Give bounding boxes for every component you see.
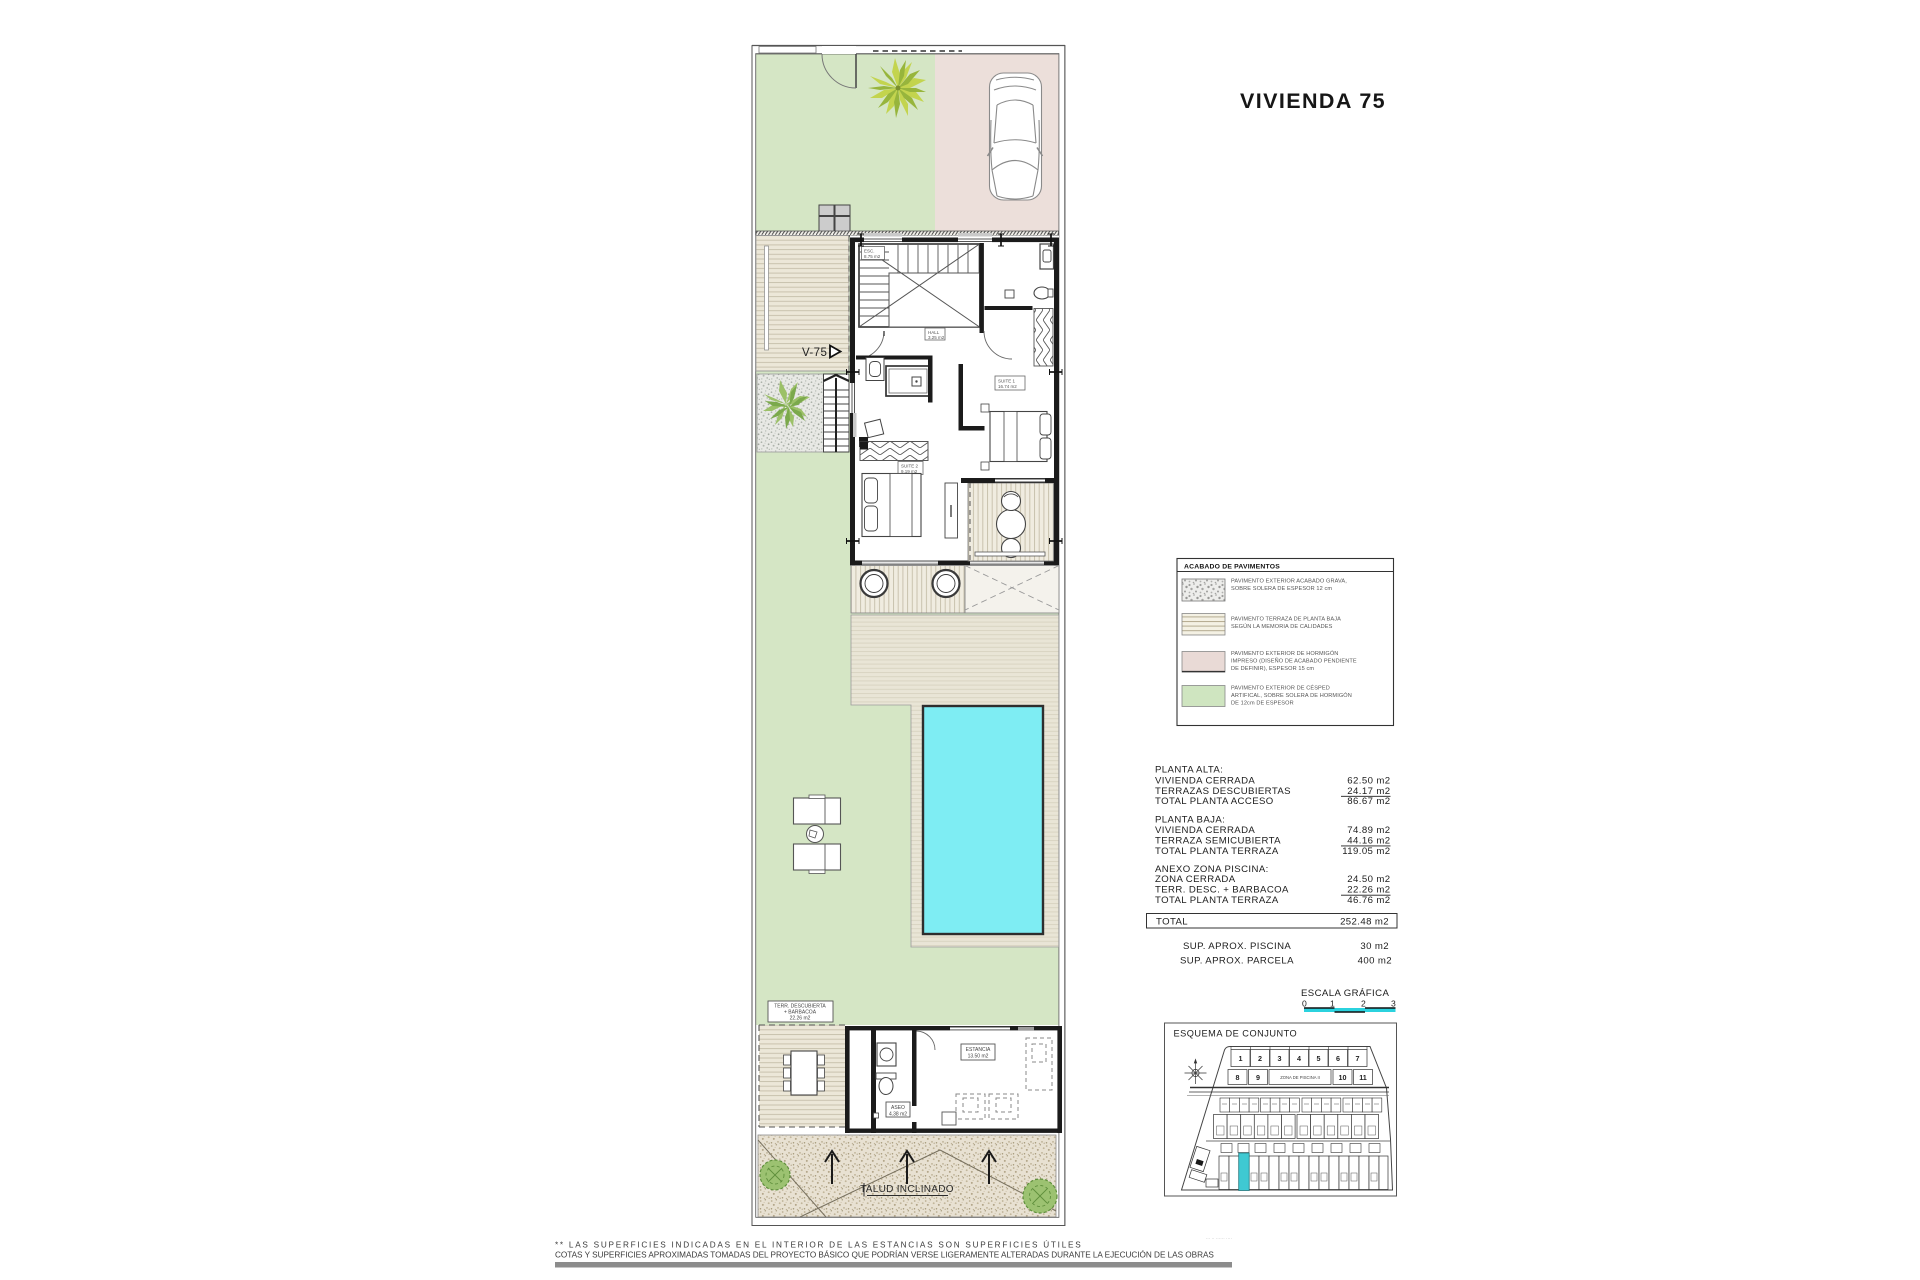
- svg-text:PLANTA ALTA:: PLANTA ALTA:: [1155, 765, 1223, 776]
- svg-text:ASEO: ASEO: [891, 1105, 905, 1111]
- svg-text:0: 0: [1302, 999, 1307, 1009]
- svg-text:COTAS Y SUPERFICIES APROXIMADA: COTAS Y SUPERFICIES APROXIMADAS TOMADAS …: [555, 1250, 1214, 1260]
- svg-text:TOTAL PLANTA TERRAZA: TOTAL PLANTA TERRAZA: [1155, 846, 1279, 857]
- svg-text:VIVIENDA CERRADA: VIVIENDA CERRADA: [1155, 825, 1255, 836]
- svg-text:SUP. APROX. PISCINA: SUP. APROX. PISCINA: [1183, 941, 1291, 952]
- svg-text:PAVIMENTO TERRAZA DE PLANTA BA: PAVIMENTO TERRAZA DE PLANTA BAJA: [1231, 617, 1341, 623]
- svg-text:11: 11: [1359, 1073, 1367, 1082]
- svg-text:SUP. APROX. PARCELA: SUP. APROX. PARCELA: [1180, 955, 1294, 966]
- svg-text:119.05 m2: 119.05 m2: [1342, 846, 1390, 857]
- svg-text:400 m2: 400 m2: [1358, 955, 1392, 966]
- svg-text:3: 3: [1391, 999, 1396, 1009]
- svg-text:44.16 m2: 44.16 m2: [1347, 835, 1390, 846]
- svg-text:ESCALA GRÁFICA: ESCALA GRÁFICA: [1301, 988, 1389, 999]
- svg-text:TERRAZA SEMICUBIERTA: TERRAZA SEMICUBIERTA: [1155, 835, 1281, 846]
- svg-text:2: 2: [1258, 1054, 1262, 1063]
- svg-text:16.74 m2: 16.74 m2: [998, 384, 1017, 389]
- svg-text:30 m2: 30 m2: [1360, 941, 1389, 952]
- svg-text:PAVIMENTO EXTERIOR DE HORMIGÓN: PAVIMENTO EXTERIOR DE HORMIGÓN: [1231, 650, 1338, 657]
- svg-text:TOTAL PLANTA ACCESO: TOTAL PLANTA ACCESO: [1155, 796, 1274, 807]
- svg-text:74.89 m2: 74.89 m2: [1347, 825, 1390, 836]
- svg-text:10: 10: [1339, 1073, 1347, 1082]
- svg-text:8.75 m2: 8.75 m2: [864, 254, 881, 259]
- svg-text:2: 2: [1361, 999, 1366, 1009]
- svg-text:ESC.: ESC.: [864, 249, 875, 254]
- svg-text:** LAS SUPERFICIES INDICADAS E: ** LAS SUPERFICIES INDICADAS EN EL INTER…: [555, 1240, 1082, 1250]
- svg-text:1: 1: [1330, 999, 1335, 1009]
- svg-text:46.76 m2: 46.76 m2: [1347, 895, 1390, 906]
- svg-text:DE 12cm DE ESPESOR: DE 12cm DE ESPESOR: [1231, 701, 1294, 707]
- svg-text:ZONA DE PISCINA II: ZONA DE PISCINA II: [1280, 1075, 1320, 1080]
- svg-text:SEGÚN LA MEMORIA DE CALIDADES: SEGÚN LA MEMORIA DE CALIDADES: [1231, 623, 1333, 630]
- svg-text:PAVIMENTO EXTERIOR ACABADO GRA: PAVIMENTO EXTERIOR ACABADO GRAVA,: [1231, 579, 1347, 585]
- svg-text:VIVIENDA CERRADA: VIVIENDA CERRADA: [1155, 775, 1255, 786]
- svg-text:SUITE 2: SUITE 2: [901, 464, 919, 469]
- svg-text:1: 1: [1239, 1054, 1243, 1063]
- svg-text:TOTAL PLANTA TERRAZA: TOTAL PLANTA TERRAZA: [1155, 895, 1279, 906]
- svg-text:6: 6: [1336, 1054, 1340, 1063]
- svg-text:V-75: V-75: [802, 347, 827, 359]
- svg-text:PAVIMENTO EXTERIOR DE CÉSPED: PAVIMENTO EXTERIOR DE CÉSPED: [1231, 685, 1330, 692]
- svg-text:TOTAL: TOTAL: [1156, 916, 1188, 927]
- svg-text:4: 4: [1297, 1054, 1301, 1063]
- svg-text:ACABADO DE PAVIMENTOS: ACABADO DE PAVIMENTOS: [1184, 564, 1280, 571]
- svg-text:ESTANCIA: ESTANCIA: [966, 1047, 991, 1053]
- svg-text:7: 7: [1356, 1054, 1360, 1063]
- svg-text:8: 8: [1236, 1073, 1240, 1082]
- svg-text:VIVIENDA 75: VIVIENDA 75: [1240, 89, 1386, 113]
- svg-text:62.50 m2: 62.50 m2: [1347, 775, 1390, 786]
- svg-text:22.26 m2: 22.26 m2: [790, 1016, 811, 1022]
- svg-text:3.25 m2: 3.25 m2: [928, 335, 945, 340]
- svg-text:TERRAZAS DESCUBIERTAS: TERRAZAS DESCUBIERTAS: [1155, 786, 1291, 797]
- svg-text:86.67 m2: 86.67 m2: [1347, 796, 1390, 807]
- svg-text:252.48 m2: 252.48 m2: [1340, 916, 1389, 927]
- svg-text:4.38 m2: 4.38 m2: [889, 1112, 907, 1118]
- svg-text:DE DEFINIR), ESPESOR 15 cm: DE DEFINIR), ESPESOR 15 cm: [1231, 666, 1314, 672]
- svg-text:SUITE 1: SUITE 1: [998, 379, 1016, 384]
- svg-text:3: 3: [1278, 1054, 1282, 1063]
- svg-text:ARTIFICAL, SOBRE SOLERA DE HOR: ARTIFICAL, SOBRE SOLERA DE HORMIGÓN: [1231, 692, 1352, 699]
- svg-text:5: 5: [1317, 1054, 1321, 1063]
- svg-text:24.17 m2: 24.17 m2: [1347, 786, 1390, 797]
- svg-text:TALUD INCLINADO: TALUD INCLINADO: [860, 1184, 954, 1195]
- svg-text:24.50 m2: 24.50 m2: [1347, 874, 1390, 885]
- svg-text:IMPRESO (DISEÑO DE ACABADO PEN: IMPRESO (DISEÑO DE ACABADO PENDIENTE: [1231, 658, 1357, 665]
- svg-text:SOBRE SOLERA DE ESPESOR 12 cm: SOBRE SOLERA DE ESPESOR 12 cm: [1231, 586, 1332, 592]
- svg-text:··· ·· ······ ····: ··· ·· ······ ····: [1206, 1236, 1232, 1241]
- svg-text:9: 9: [1256, 1073, 1260, 1082]
- svg-text:ESQUEMA DE CONJUNTO: ESQUEMA DE CONJUNTO: [1174, 1029, 1298, 1039]
- svg-text:13.50 m2: 13.50 m2: [968, 1054, 989, 1060]
- svg-text:ZONA CERRADA: ZONA CERRADA: [1155, 874, 1236, 885]
